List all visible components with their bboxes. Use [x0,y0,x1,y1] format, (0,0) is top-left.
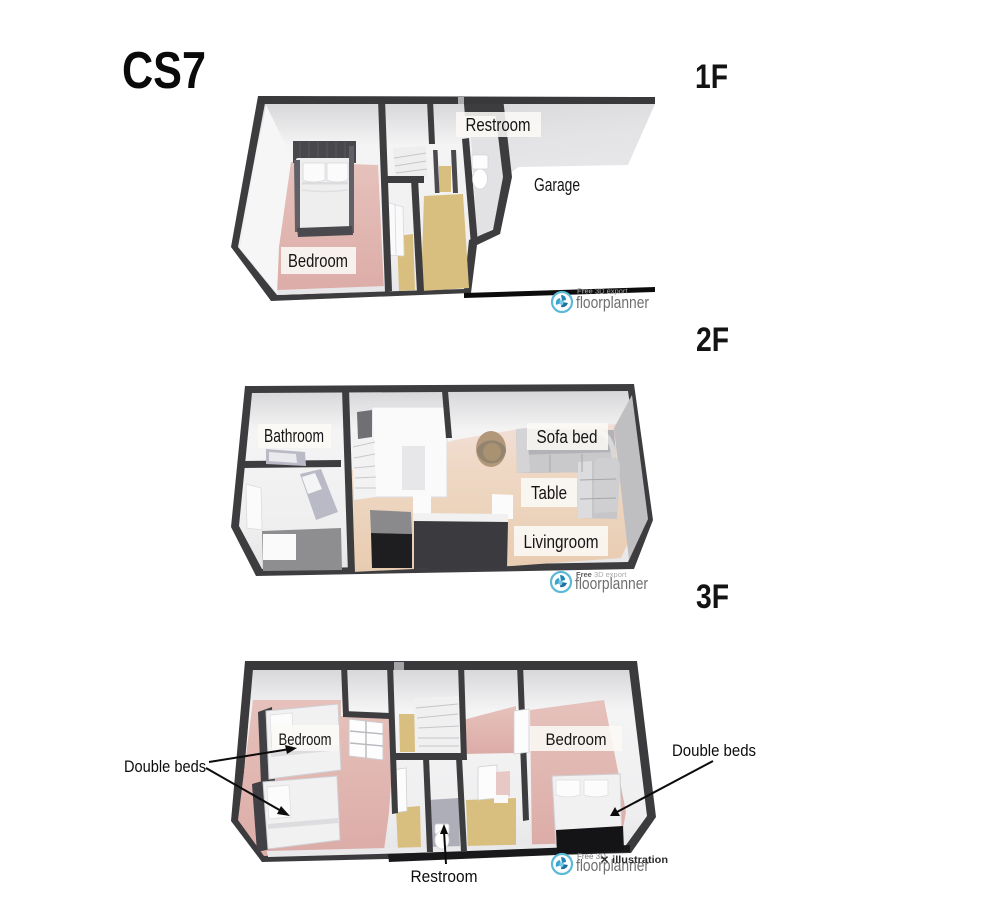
svg-text:1F: 1F [695,58,728,96]
svg-text:Bathroom: Bathroom [264,426,324,446]
svg-text:Table: Table [531,483,567,503]
svg-text:floorplanner: floorplanner [575,575,648,593]
svg-text:Garage: Garage [534,175,580,195]
svg-text:Bedroom: Bedroom [546,730,607,749]
svg-text:Double beds: Double beds [672,741,756,760]
svg-text:Restroom: Restroom [466,115,531,135]
svg-text:Bedroom: Bedroom [288,251,348,271]
svg-text:CS7: CS7 [122,42,206,100]
svg-text:Sofa bed: Sofa bed [537,427,598,447]
svg-text:✕ illustration: ✕ illustration [600,855,668,866]
svg-text:floorplanner: floorplanner [576,294,649,312]
svg-text:Restroom: Restroom [411,867,478,886]
svg-text:2F: 2F [696,321,729,359]
svg-text:Double beds: Double beds [124,757,206,776]
svg-text:Livingroom: Livingroom [524,532,599,552]
svg-text:3F: 3F [696,578,729,616]
